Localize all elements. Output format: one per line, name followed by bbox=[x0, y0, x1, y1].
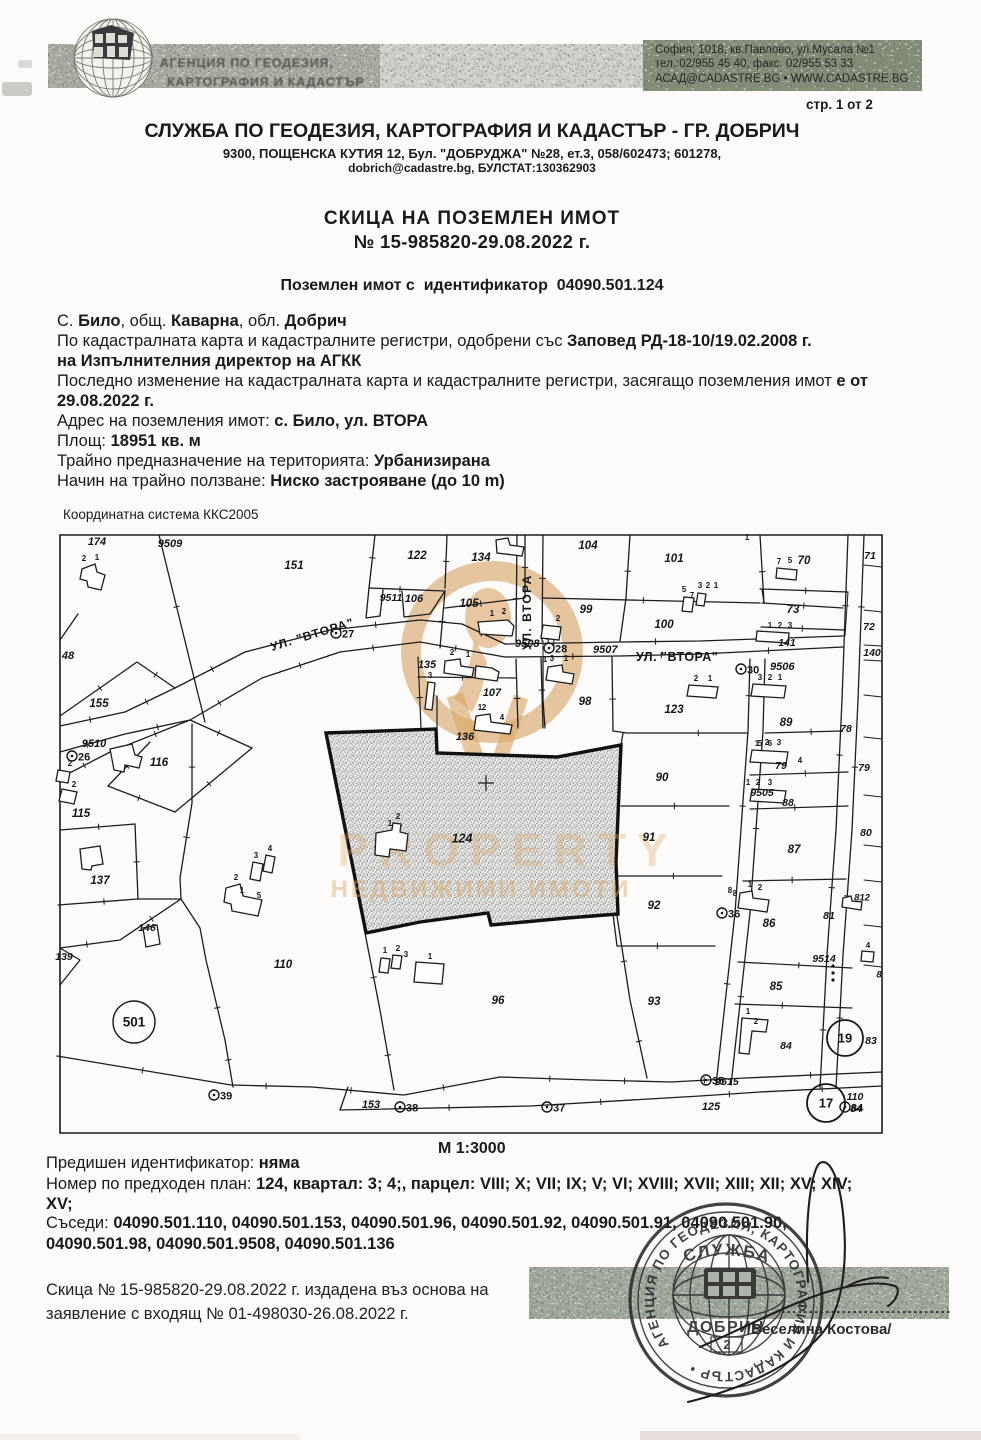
svg-text:/Веселина Костова/: /Веселина Костова/ bbox=[747, 1321, 892, 1338]
svg-text:2: 2 bbox=[723, 1337, 730, 1352]
